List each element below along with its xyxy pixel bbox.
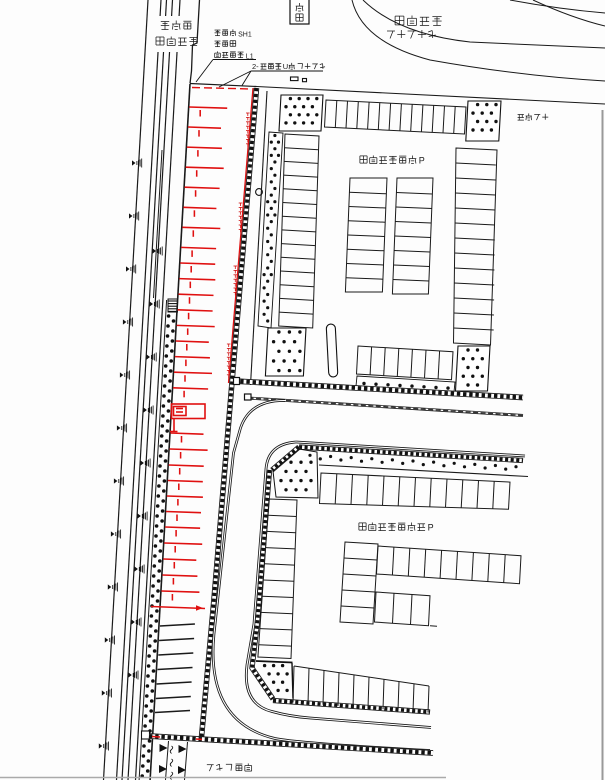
svg-text:P: P xyxy=(428,523,434,533)
svg-text:P: P xyxy=(419,156,425,166)
svg-text:SH1: SH1 xyxy=(238,32,252,39)
svg-text:2-: 2- xyxy=(252,62,259,71)
svg-text:U: U xyxy=(283,62,288,71)
